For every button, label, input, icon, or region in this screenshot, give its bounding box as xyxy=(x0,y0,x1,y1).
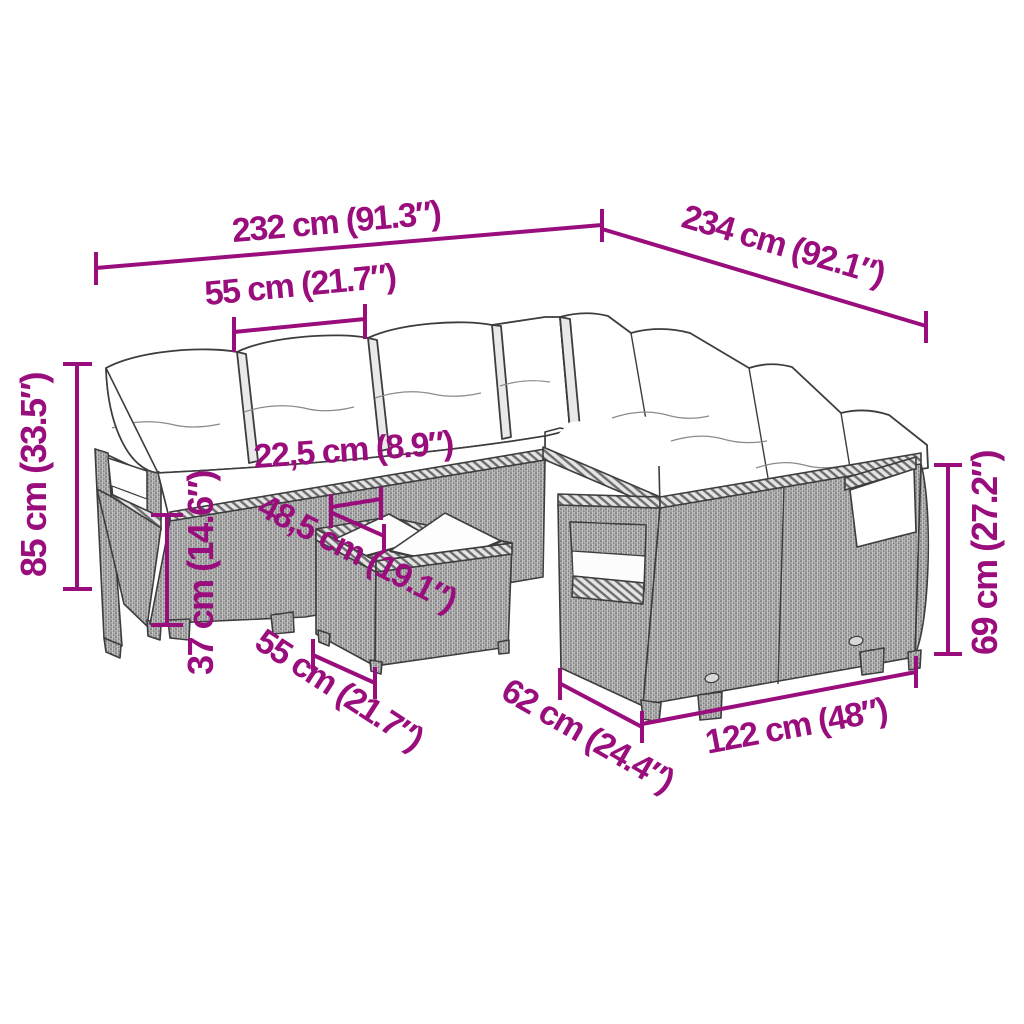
svg-text:69 cm (27.2″): 69 cm (27.2″) xyxy=(964,451,1005,655)
svg-text:37 cm (14.6″): 37 cm (14.6″) xyxy=(180,471,221,675)
svg-text:85 cm (33.5″): 85 cm (33.5″) xyxy=(13,373,54,577)
